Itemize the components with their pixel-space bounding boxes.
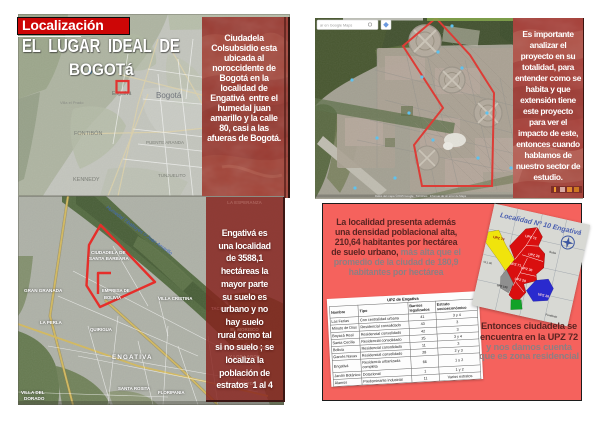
svg-text:LA PERLA: LA PERLA xyxy=(40,320,63,325)
svg-text:EMPRESA DE: EMPRESA DE xyxy=(102,288,130,293)
svg-text:TUNJUELITO: TUNJUELITO xyxy=(158,173,186,178)
svg-text:DORADO: DORADO xyxy=(24,396,45,401)
svg-text:KENNEDY: KENNEDY xyxy=(73,177,100,183)
svg-text:ar en Google Maps: ar en Google Maps xyxy=(320,24,352,28)
svg-text:QUIRIGUA: QUIRIGUA xyxy=(90,327,113,332)
svg-text:ENGATIVA: ENGATIVA xyxy=(112,354,153,361)
svg-text:FONTIBÓN: FONTIBÓN xyxy=(74,130,102,137)
svg-text:Villa el Prado: Villa el Prado xyxy=(60,100,84,105)
svg-text:FLORIPANIA: FLORIPANIA xyxy=(158,390,185,395)
svg-text:BOLIVIA: BOLIVIA xyxy=(104,295,121,300)
svg-text:VILLA DEL: VILLA DEL xyxy=(21,390,45,395)
svg-text:SANTA BARBARA: SANTA BARBARA xyxy=(89,256,129,261)
svg-text:Bogotá: Bogotá xyxy=(156,91,182,100)
svg-text:PUENTE ARANDA: PUENTE ARANDA xyxy=(146,140,184,145)
svg-text:CIUDADELA DE: CIUDADELA DE xyxy=(91,250,126,255)
svg-text:VILLA CRISTINA: VILLA CRISTINA xyxy=(158,296,193,301)
svg-text:Datos del mapa ©2015 Google: Datos del mapa ©2015 Google Términos Inf… xyxy=(375,194,467,198)
svg-text:SANTA ROSITA: SANTA ROSITA xyxy=(118,386,151,391)
svg-text:GRAN GRANADA: GRAN GRANADA xyxy=(24,288,63,293)
